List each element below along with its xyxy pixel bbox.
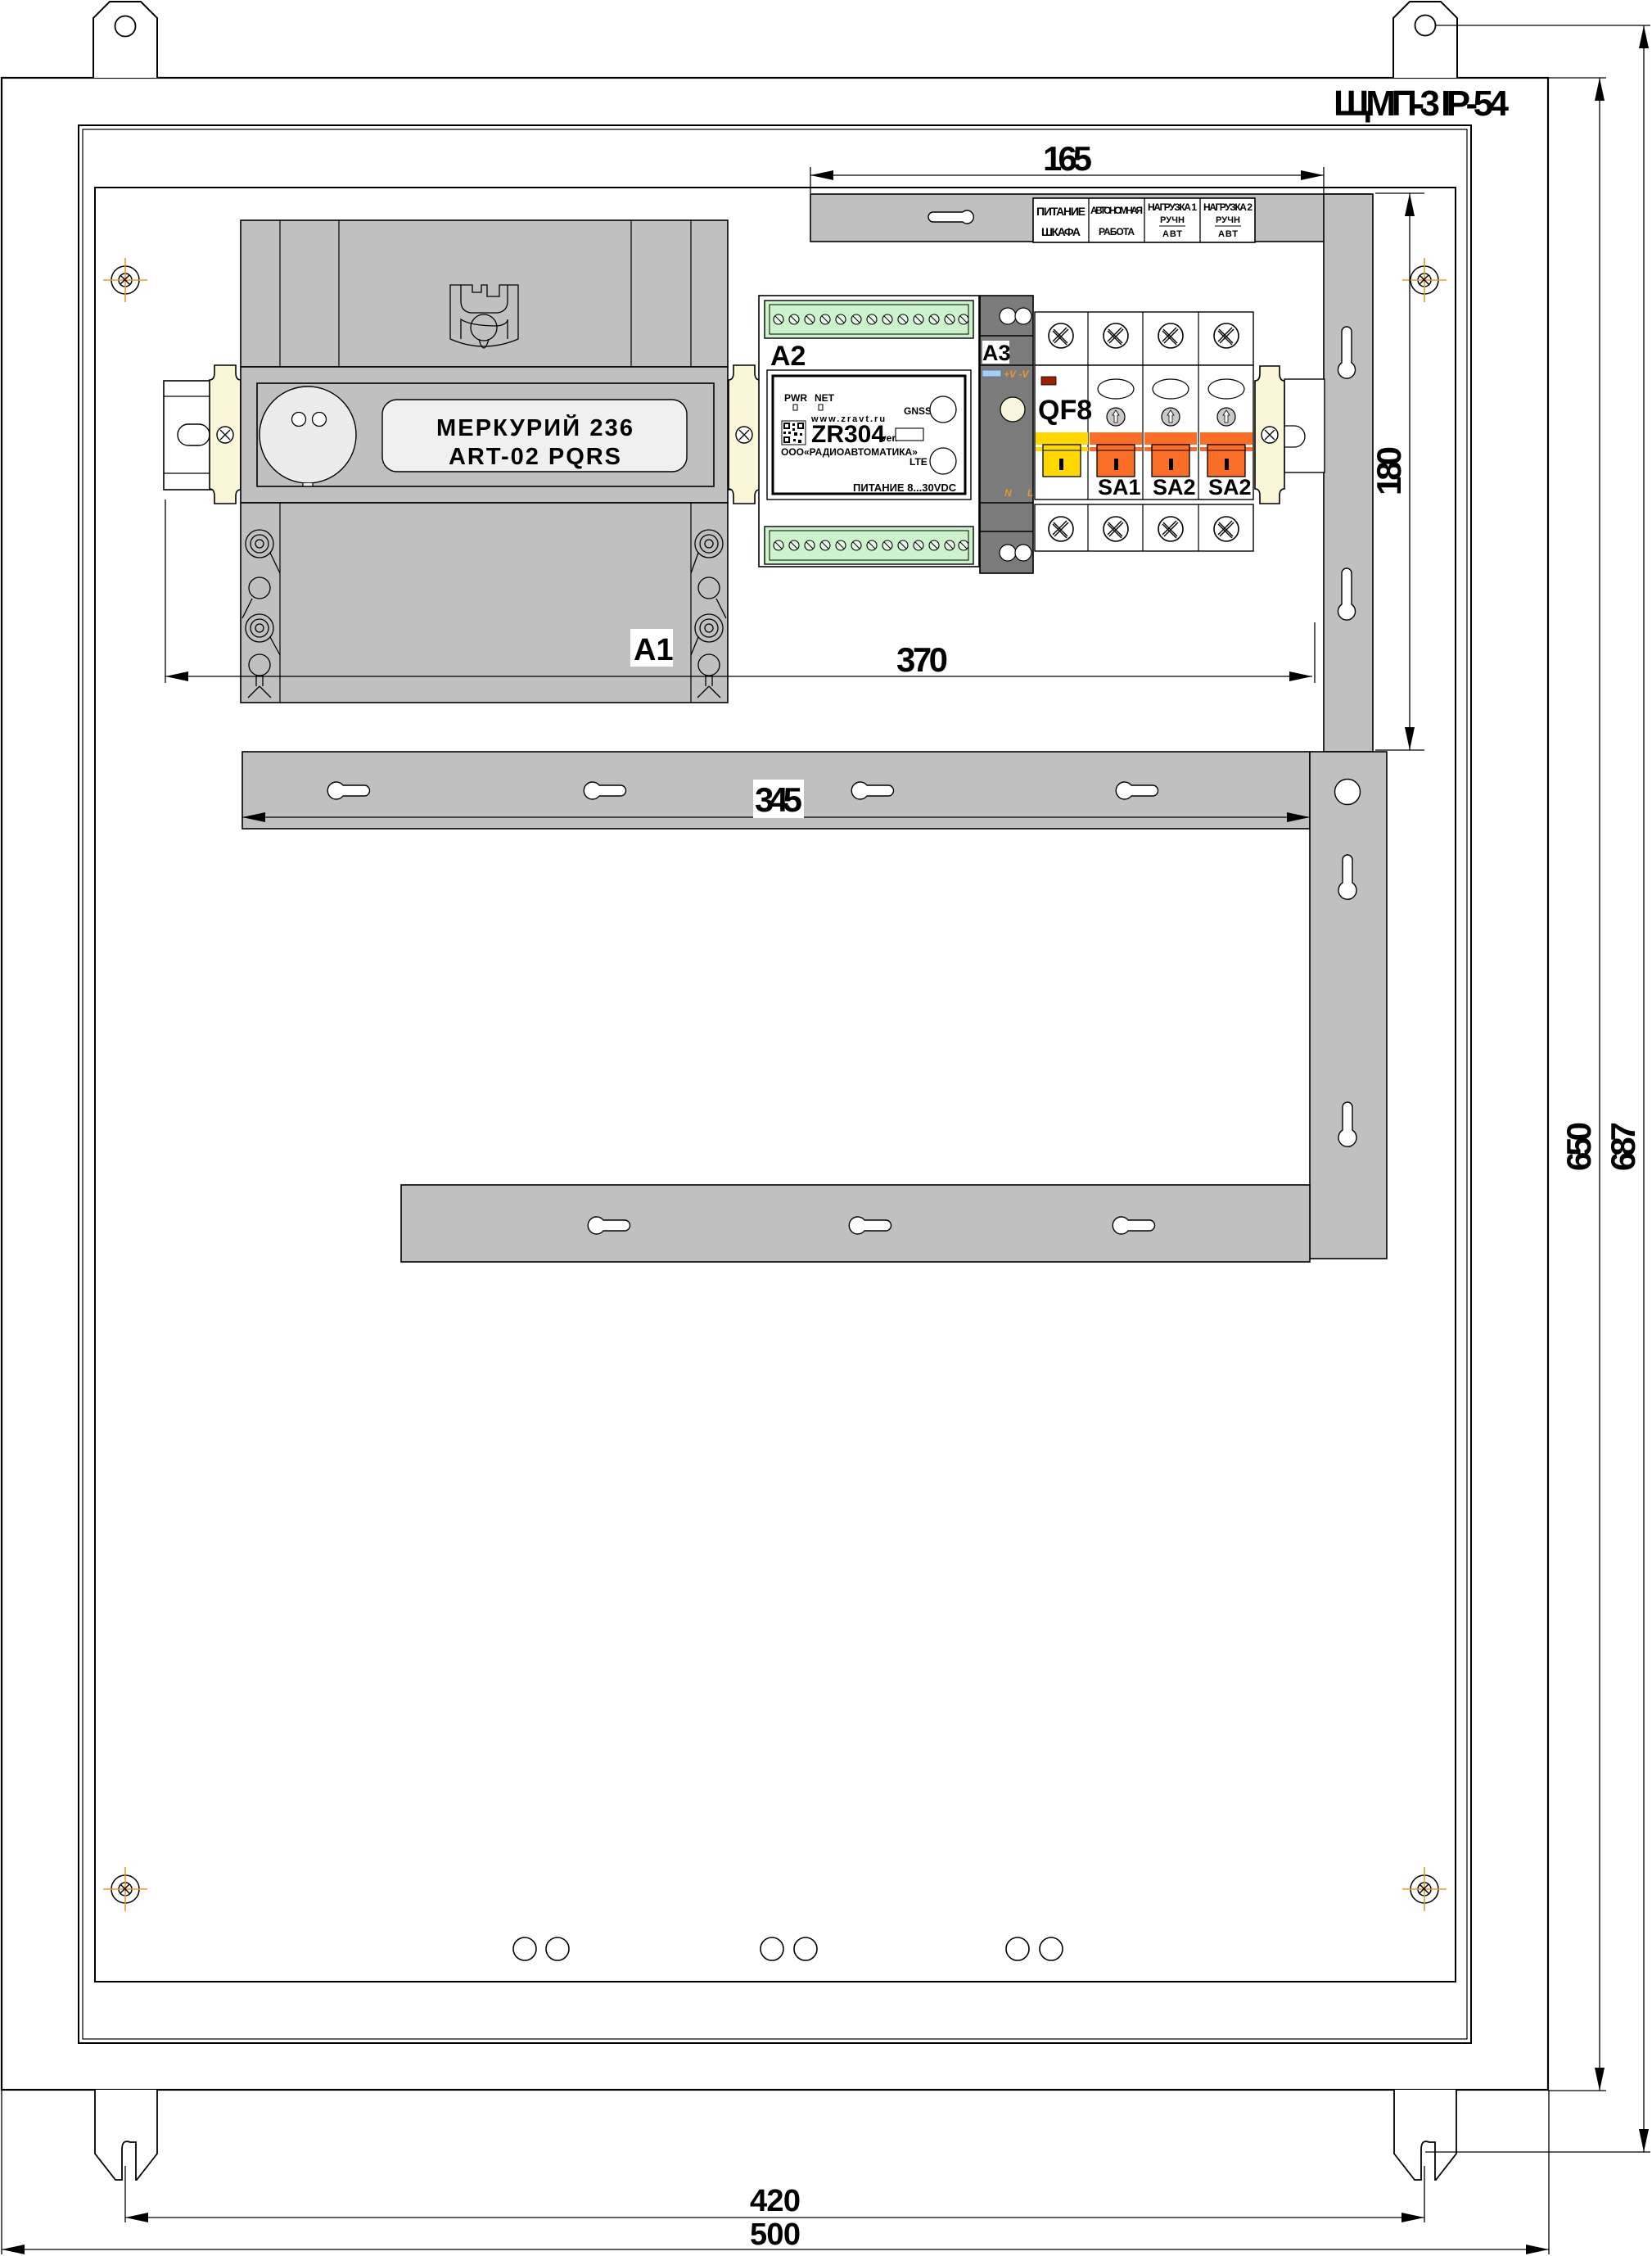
svg-text:GNSS: GNSS bbox=[904, 405, 932, 417]
svg-text:ЩМП-3 IP-54: ЩМП-3 IP-54 bbox=[1334, 84, 1510, 124]
svg-text:NET: NET bbox=[815, 392, 835, 404]
svg-text:ПИТАНИЕ: ПИТАНИЕ bbox=[1036, 205, 1086, 218]
svg-text:165: 165 bbox=[1043, 139, 1092, 178]
svg-text:LTE: LTE bbox=[910, 456, 928, 468]
svg-text:НАГРУЗКА 1: НАГРУЗКА 1 bbox=[1148, 201, 1197, 213]
svg-text:650: 650 bbox=[1559, 1122, 1598, 1171]
svg-text:PWR: PWR bbox=[784, 392, 807, 404]
svg-text:370: 370 bbox=[896, 640, 948, 679]
svg-text:РУЧН: РУЧН bbox=[1160, 215, 1185, 225]
svg-text:A1: A1 bbox=[634, 633, 674, 667]
svg-text:НАГРУЗКА 2: НАГРУЗКА 2 bbox=[1203, 201, 1253, 213]
svg-text:SA2: SA2 bbox=[1208, 475, 1252, 500]
svg-text:+V -V: +V -V bbox=[1004, 368, 1029, 380]
svg-text:АВТОНОМНАЯ: АВТОНОМНАЯ bbox=[1090, 205, 1143, 216]
svg-text:АВТ: АВТ bbox=[1218, 229, 1238, 239]
svg-text:РАБОТА: РАБОТА bbox=[1099, 226, 1135, 237]
svg-text:ART-02 PQRS: ART-02 PQRS bbox=[449, 444, 621, 470]
svg-text:SA2: SA2 bbox=[1153, 475, 1196, 500]
svg-text:A3: A3 bbox=[982, 341, 1011, 365]
svg-text:SA1: SA1 bbox=[1098, 475, 1141, 500]
svg-text:687: 687 bbox=[1604, 1122, 1642, 1171]
svg-text:QF8: QF8 bbox=[1038, 395, 1092, 426]
svg-text:ШКАФА: ШКАФА bbox=[1041, 225, 1081, 238]
svg-text:345: 345 bbox=[755, 780, 802, 819]
svg-text:АВТ: АВТ bbox=[1162, 229, 1182, 239]
svg-text:ООО«РАДИОАВТОМАТИКА»: ООО«РАДИОАВТОМАТИКА» bbox=[781, 446, 918, 458]
svg-text:ZR304: ZR304 bbox=[811, 421, 885, 448]
svg-text:A2: A2 bbox=[770, 341, 806, 372]
svg-text:ПИТАНИЕ 8...30VDC: ПИТАНИЕ 8...30VDC bbox=[853, 481, 957, 494]
svg-text:РУЧН: РУЧН bbox=[1216, 215, 1240, 225]
svg-text:180: 180 bbox=[1370, 446, 1408, 495]
svg-text:500: 500 bbox=[750, 2218, 801, 2252]
svg-text:420: 420 bbox=[750, 2184, 801, 2218]
